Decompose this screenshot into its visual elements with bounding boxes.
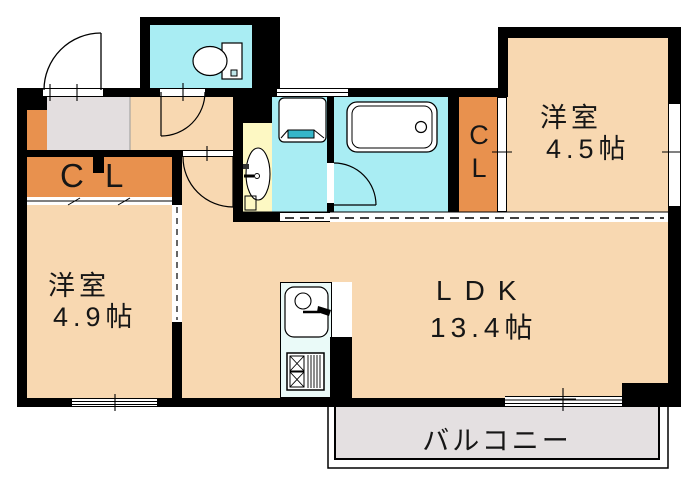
closet-right-label-c: C xyxy=(466,120,492,151)
entry-genkan-area xyxy=(47,97,130,152)
room49-size-label: 4.9帖 xyxy=(53,295,138,334)
closet-left-sliding-band xyxy=(27,197,172,205)
wall-bottom-b xyxy=(157,398,505,407)
wall-toilet-left xyxy=(140,17,150,88)
toilet-room-area xyxy=(150,25,252,88)
wall-room49-right-upper xyxy=(172,157,182,205)
hallway-area xyxy=(130,97,233,150)
washroom-sliding-door xyxy=(280,212,330,222)
toilet-door-threshold xyxy=(160,88,205,97)
washbasin-area xyxy=(243,123,272,212)
wall-left-outer xyxy=(17,88,27,407)
ldk-corridor-area xyxy=(182,157,233,222)
wall-bath-lower xyxy=(327,203,334,212)
wall-room49-right-lower xyxy=(172,322,182,398)
ldk-name-label: LDK xyxy=(436,275,529,307)
refrigerator-space xyxy=(332,282,352,337)
wall-below-washbasin xyxy=(233,212,280,222)
hall-ldk-door-threshold xyxy=(183,150,233,157)
wall-bottom-corner xyxy=(622,383,676,407)
wall-kitchen-pillar xyxy=(330,337,352,398)
wall-bottom-a xyxy=(17,398,72,407)
washroom-top-window xyxy=(277,88,348,97)
wall-right-lower xyxy=(668,207,681,407)
wall-hall-right xyxy=(233,97,243,212)
shoe-cabinet xyxy=(27,110,47,152)
wall-right-upper xyxy=(668,38,681,103)
wall-room45-top xyxy=(498,27,681,38)
ldk-area xyxy=(182,222,668,398)
room49-window xyxy=(72,398,157,407)
closet-left-label: C L xyxy=(60,157,129,195)
wall-bath-upper xyxy=(327,97,334,163)
ldk-balcony-window xyxy=(505,396,622,407)
wall-above-washbasin xyxy=(243,97,272,123)
bathroom-door-gap xyxy=(327,163,334,203)
room45-right-window xyxy=(668,103,681,207)
wall-top-d xyxy=(348,88,508,97)
closet-right-door xyxy=(497,97,507,212)
room49-doorway xyxy=(172,205,182,322)
balcony-label: バルコニー xyxy=(334,419,660,458)
kitchen-counter xyxy=(280,282,332,398)
wall-pipe-space xyxy=(252,17,280,97)
partition-band xyxy=(330,212,668,222)
wall-below-genkan xyxy=(17,150,183,157)
wall-bath-closet xyxy=(448,97,459,212)
room45-size-label: 4.5帖 xyxy=(546,127,631,166)
washroom-area xyxy=(272,97,327,212)
closet-right-label-l: L xyxy=(466,153,492,184)
bathroom-area xyxy=(334,97,448,212)
ldk-size-label: 13.4帖 xyxy=(430,306,538,346)
wall-top-b xyxy=(103,88,160,97)
floor-plan: 洋室 4.5帖 LDK 13.4帖 洋室 4.9帖 C L C L バルコニー xyxy=(0,0,681,497)
entrance-door-arc xyxy=(44,33,101,90)
entrance-door-threshold xyxy=(43,88,103,97)
